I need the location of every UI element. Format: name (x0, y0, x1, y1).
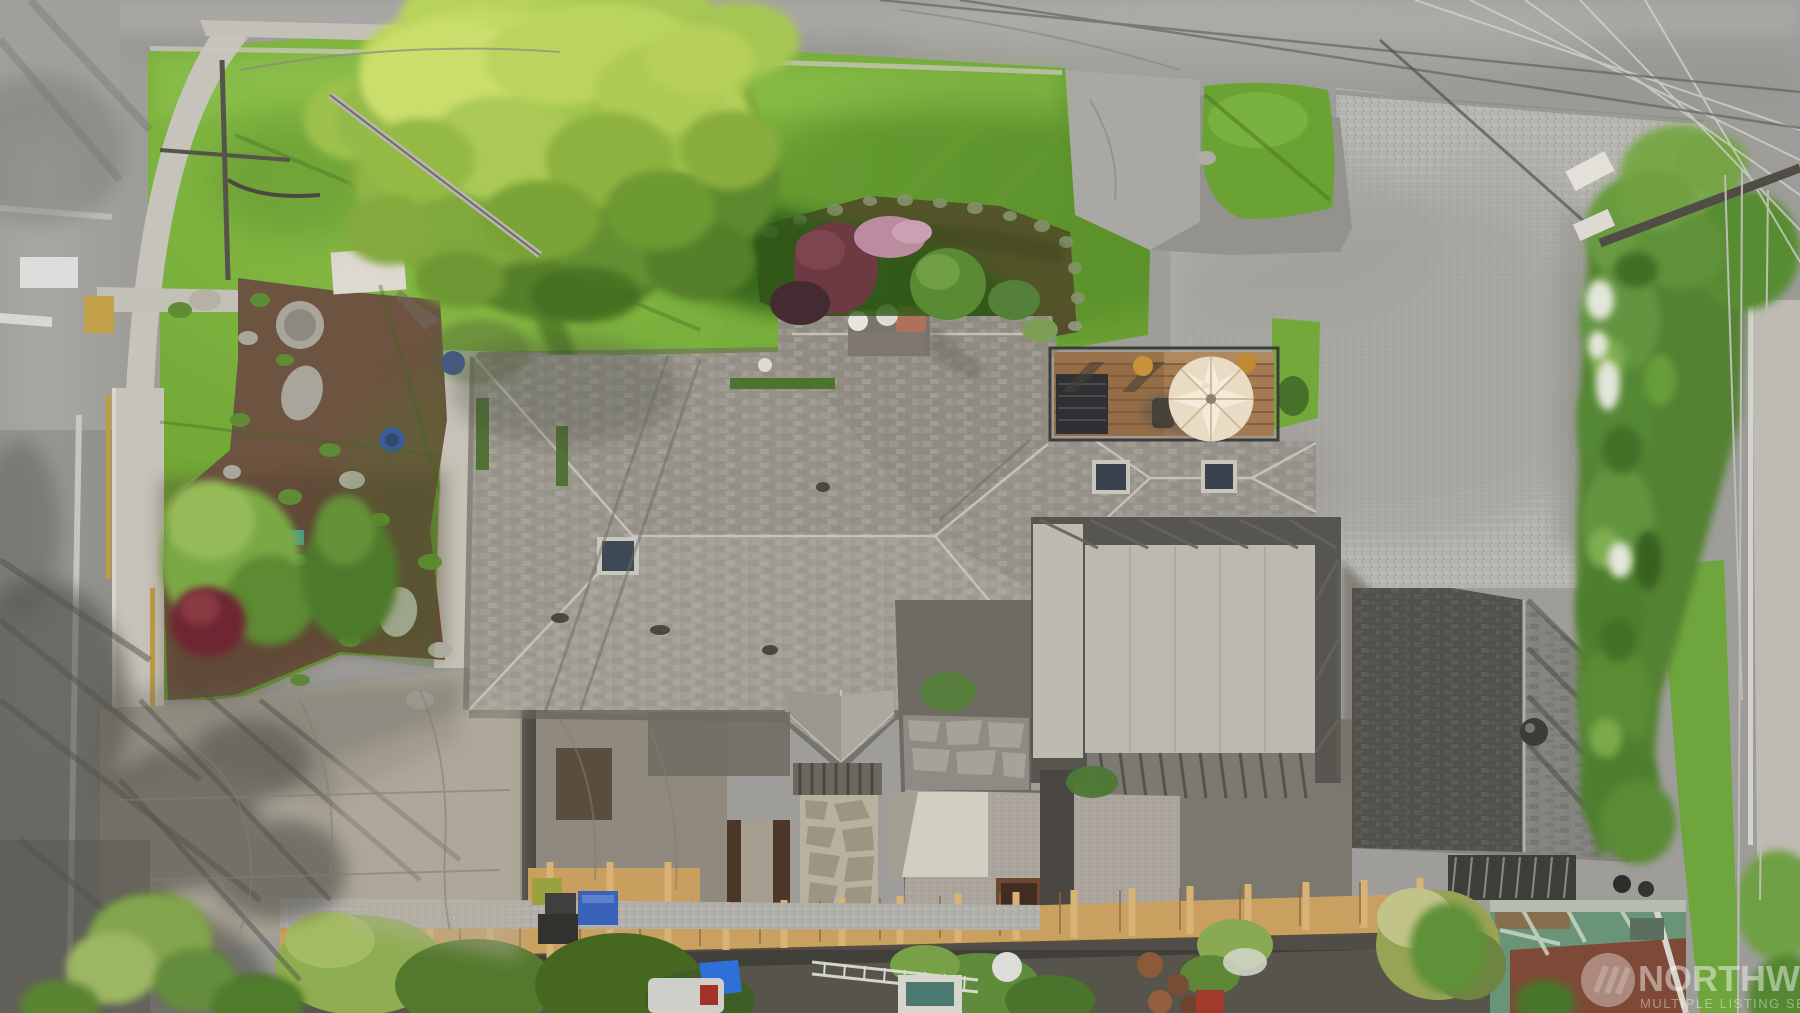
svg-text:NORTHWEST: NORTHWEST (1638, 958, 1800, 999)
svg-text:MULTIPLE LISTING SERVICE: MULTIPLE LISTING SERVICE (1640, 996, 1800, 1011)
